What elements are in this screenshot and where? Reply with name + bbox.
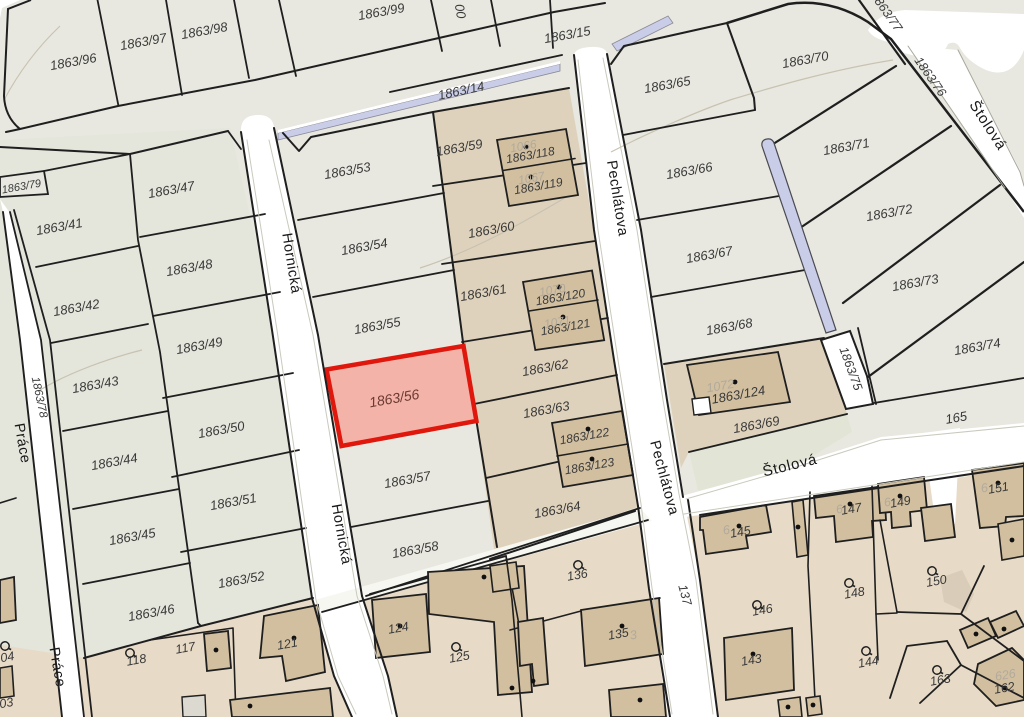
svg-text:04: 04	[0, 649, 15, 665]
svg-text:03: 03	[0, 695, 14, 711]
